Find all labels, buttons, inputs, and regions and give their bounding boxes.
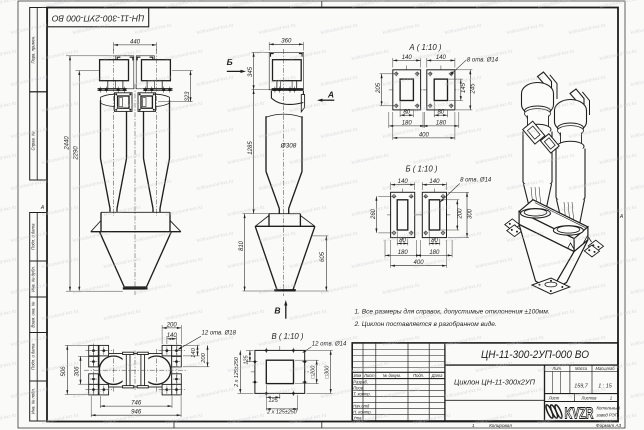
svg-text:306: 306 (74, 366, 80, 377)
svg-text:140: 140 (402, 55, 413, 61)
svg-text:Лист: Лист (548, 396, 560, 401)
svg-text:345: 345 (248, 66, 254, 77)
svg-text:205: 205 (376, 82, 382, 94)
svg-text:180: 180 (402, 120, 413, 126)
svg-text:125: 125 (244, 354, 250, 364)
svg-text:Масса: Масса (575, 366, 588, 371)
svg-text:360: 360 (281, 39, 292, 45)
svg-text:180: 180 (429, 250, 440, 256)
svg-text:200: 200 (458, 208, 464, 220)
svg-text:Подп. и дата: Подп. и дата (31, 343, 36, 370)
svg-text:Циклон ЦН-11-300х2УП: Циклон ЦН-11-300х2УП (454, 378, 535, 387)
svg-text:Подп.: Подп. (413, 373, 424, 378)
svg-text:ЦН-11-300-2УП-000 ВО: ЦН-11-300-2УП-000 ВО (481, 349, 590, 361)
svg-text:№ докум.: № докум. (383, 373, 401, 378)
svg-text:А ( 1:10 ): А ( 1:10 ) (408, 43, 441, 52)
svg-text:А: А (619, 214, 624, 220)
svg-text:200: 200 (166, 322, 178, 328)
svg-text:180: 180 (398, 250, 409, 256)
svg-text:Перв. примен.: Перв. примен. (31, 36, 36, 64)
svg-text:Изм: Изм (354, 373, 362, 378)
svg-text:Н. контр.: Н. контр. (353, 410, 371, 415)
svg-text:245: 245 (471, 83, 477, 95)
svg-text:180: 180 (436, 120, 447, 126)
svg-text:1: 1 (472, 423, 475, 428)
svg-text:440: 440 (130, 39, 141, 45)
svg-text:Б ( 1:10 ): Б ( 1:10 ) (406, 165, 438, 174)
svg-text:Копировал: Копировал (489, 423, 512, 428)
svg-text:Ø308: Ø308 (280, 143, 297, 150)
svg-text:Разраб.: Разраб. (353, 380, 368, 385)
svg-text:80: 80 (403, 110, 410, 116)
svg-text:Нач.отд: Нач.отд (353, 404, 370, 409)
svg-text:Котельный: Котельный (597, 406, 621, 411)
svg-text:140: 140 (429, 179, 440, 185)
svg-text:400: 400 (419, 132, 430, 138)
svg-text:140: 140 (191, 347, 197, 357)
svg-text:2 х 125±250: 2 х 125±250 (266, 410, 297, 416)
svg-text:ЦН-11-300-2УП-000 ВО: ЦН-11-300-2УП-000 ВО (51, 13, 144, 23)
svg-text:810: 810 (239, 240, 245, 251)
svg-text:1285: 1285 (248, 141, 254, 155)
svg-text:2440: 2440 (64, 136, 70, 151)
svg-text:80: 80 (431, 238, 438, 244)
svg-text:В: В (274, 306, 280, 316)
svg-text:Дата: Дата (431, 373, 444, 378)
svg-text:323: 323 (185, 91, 191, 102)
svg-text:746: 746 (131, 401, 142, 407)
svg-text:80: 80 (438, 110, 445, 116)
svg-text:125: 125 (268, 398, 278, 404)
svg-text:□300: □300 (324, 365, 330, 379)
svg-text:159,7: 159,7 (574, 384, 588, 390)
svg-text:А: А (327, 89, 334, 99)
svg-text:Взам. инв. №: Взам. инв. № (31, 301, 36, 327)
svg-text:А: А (40, 205, 45, 211)
svg-text:300: 300 (467, 208, 473, 219)
svg-text:Лист: Лист (363, 373, 375, 378)
